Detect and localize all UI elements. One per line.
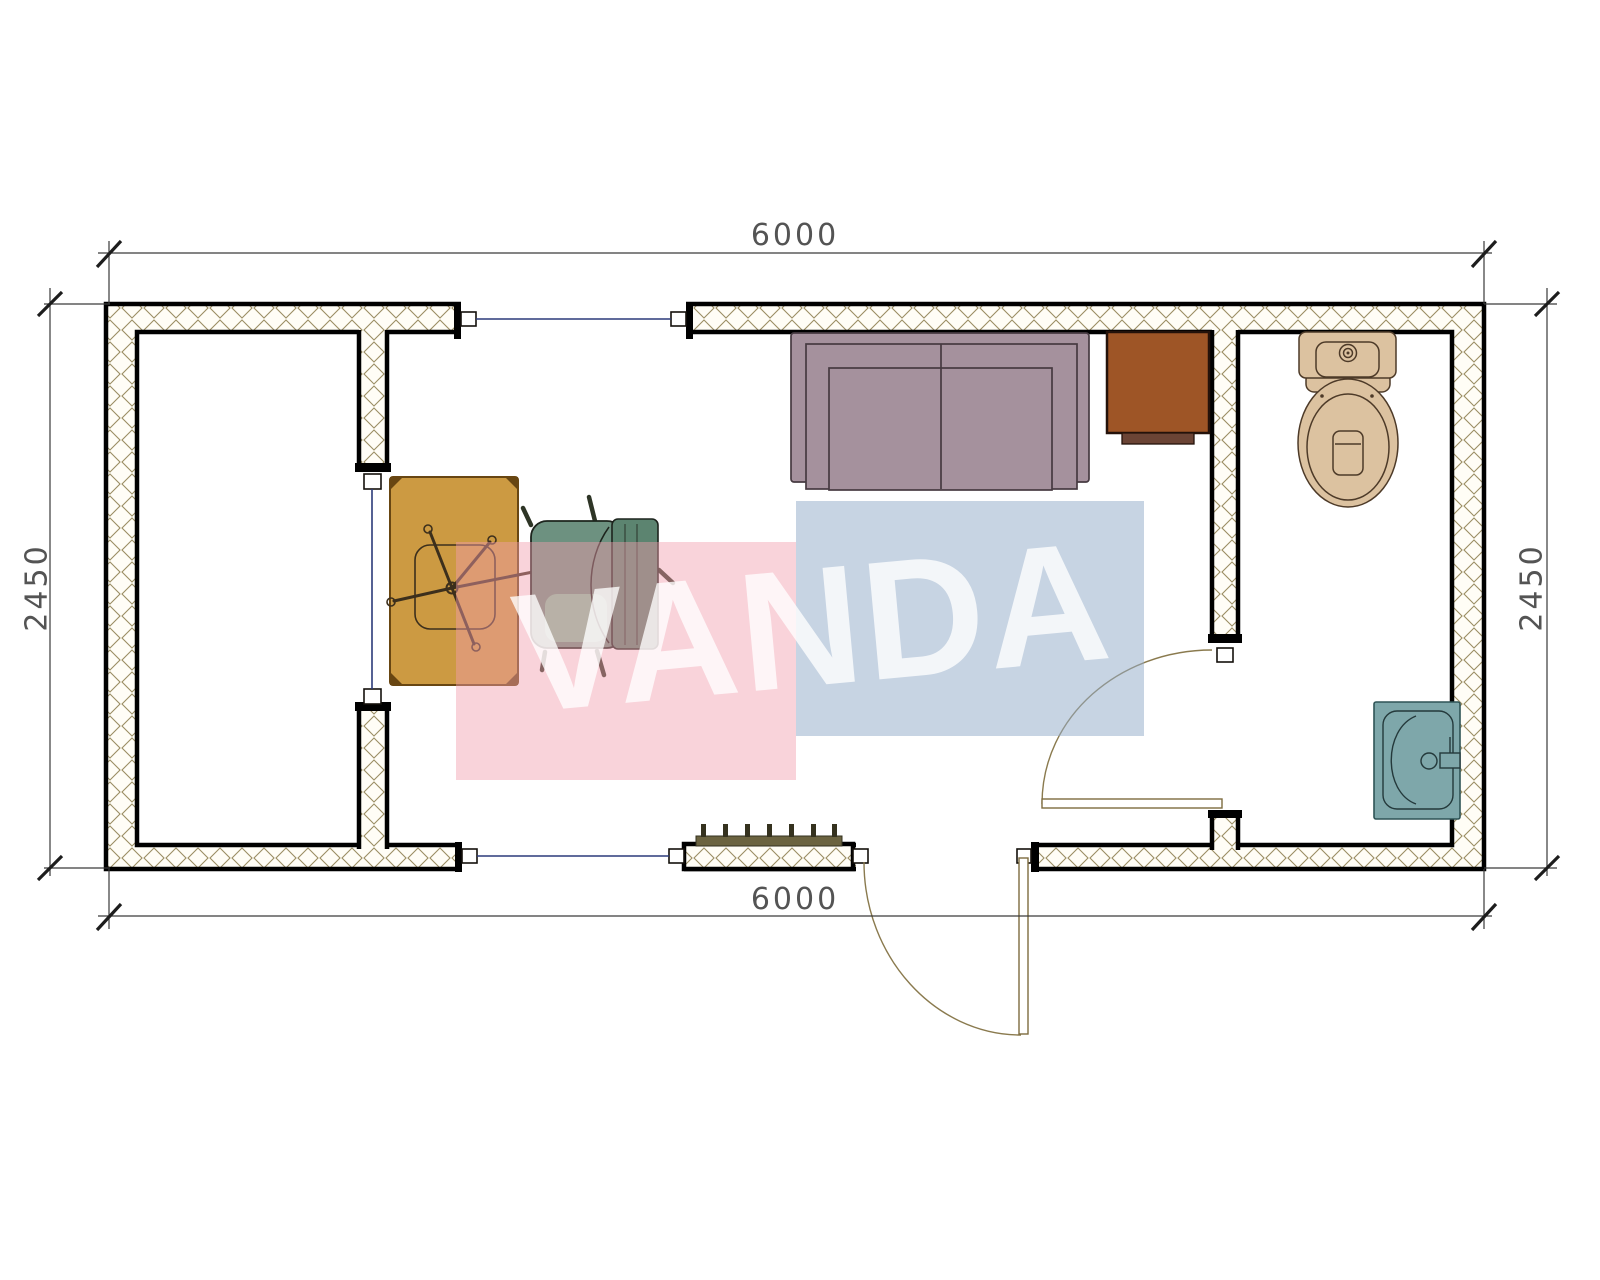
entrance-opening: [856, 841, 1035, 874]
floor-plan-canvas: VANDA 6000 6000 2450 2450: [0, 0, 1600, 1280]
dimension-label-bottom: 6000: [695, 882, 895, 917]
dimension-label-right: 2450: [1515, 488, 1550, 688]
partition-left-lower: [355, 702, 391, 862]
bathroom-door-leaf: [1042, 799, 1222, 808]
bottom-wall-segment: [684, 844, 853, 869]
partition-bathroom: [1208, 310, 1242, 643]
toilet-tank: [1299, 332, 1396, 378]
entrance-door-leaf: [1019, 858, 1028, 1034]
sofa: [791, 333, 1089, 490]
dimension-label-left: 2450: [20, 488, 55, 688]
cabinet: [1107, 332, 1209, 444]
radiator: [696, 824, 842, 846]
toilet: [1298, 332, 1398, 507]
sink: [1374, 702, 1460, 819]
dimension-label-top: 6000: [695, 218, 895, 253]
bottom-window-opening: [462, 841, 684, 874]
partition-bathroom-stub: [1208, 810, 1242, 850]
partition-left-upper: [355, 310, 391, 472]
toilet-drain: [1333, 431, 1363, 475]
faucet: [1440, 753, 1460, 768]
